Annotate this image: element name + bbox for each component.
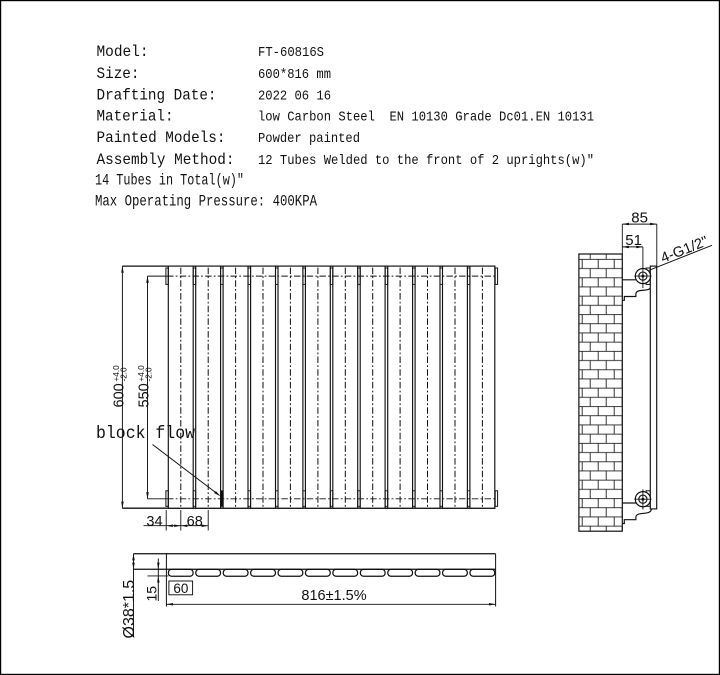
svg-text:15: 15 [144, 586, 160, 602]
svg-text:block flow: block flow [96, 424, 195, 444]
svg-text:Painted Models:: Painted Models: [97, 129, 226, 147]
svg-text:550: 550 [137, 383, 153, 407]
svg-text:Model:: Model: [97, 43, 149, 61]
svg-text:68: 68 [187, 514, 203, 530]
svg-text:-2.0: -2.0 [120, 367, 129, 382]
svg-text:Material:: Material: [97, 108, 174, 126]
svg-text:85: 85 [631, 209, 648, 226]
svg-text:51: 51 [625, 232, 642, 249]
svg-text:low Carbon Steel EN 10130 Gra: low Carbon Steel EN 10130 Grade Dc01.EN … [258, 111, 594, 126]
svg-text:Drafting Date:: Drafting Date: [97, 87, 217, 105]
svg-text:Powder painted: Powder painted [258, 132, 360, 147]
svg-text:600*816 mm: 600*816 mm [258, 68, 331, 83]
svg-text:816±1.5%: 816±1.5% [301, 588, 366, 604]
svg-text:-2.0: -2.0 [145, 367, 154, 382]
svg-text:Size:: Size: [97, 65, 140, 83]
svg-text:Max Operating Pressure: 400KPA: Max Operating Pressure: 400KPA [95, 193, 317, 211]
svg-text:Assembly Method:: Assembly Method: [97, 151, 235, 169]
svg-text:34: 34 [146, 514, 162, 530]
svg-text:Ø38*1.5: Ø38*1.5 [121, 580, 138, 639]
svg-text:14 Tubes in Total(w)″: 14 Tubes in Total(w)″ [95, 172, 244, 190]
svg-text:2022 06 16: 2022 06 16 [258, 90, 331, 105]
svg-text:12 Tubes Welded to the front o: 12 Tubes Welded to the front of 2 uprigh… [258, 154, 594, 169]
svg-text:60: 60 [173, 581, 188, 596]
svg-text:FT-60816S: FT-60816S [258, 46, 324, 61]
svg-text:600: 600 [112, 383, 128, 407]
